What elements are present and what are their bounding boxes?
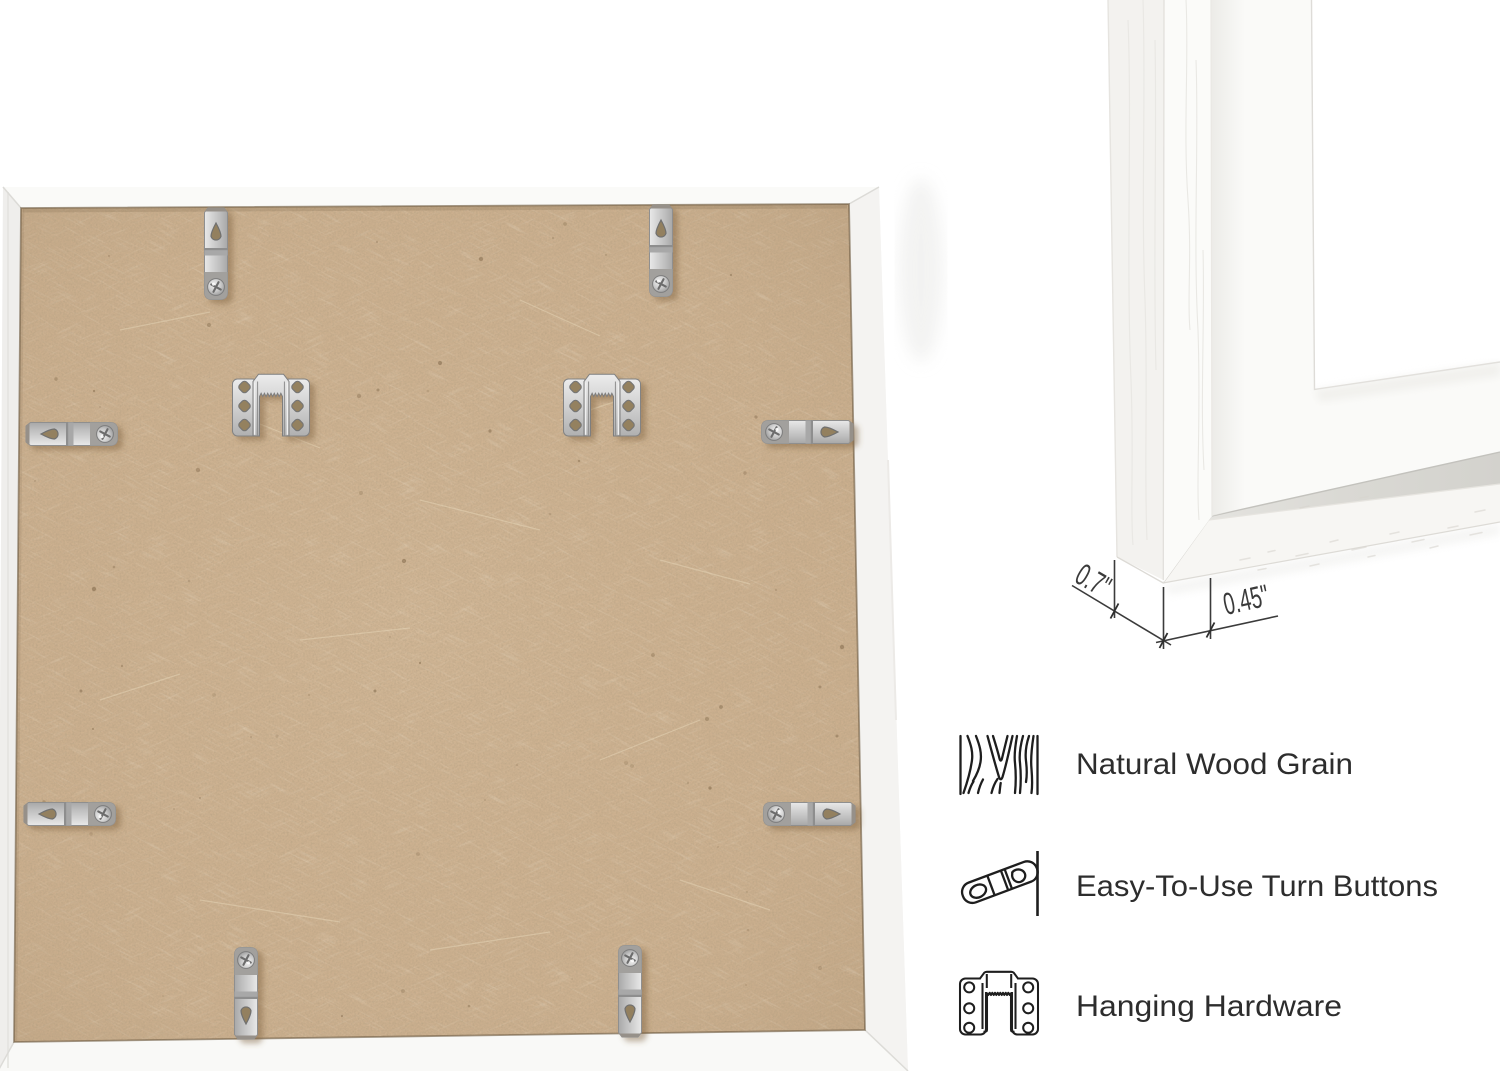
svg-text:Natural Wood Grain: Natural Wood Grain: [1076, 748, 1353, 781]
svg-text:Hanging Hardware: Hanging Hardware: [1076, 990, 1342, 1023]
svg-text:Easy-To-Use Turn Buttons: Easy-To-Use Turn Buttons: [1076, 870, 1438, 903]
